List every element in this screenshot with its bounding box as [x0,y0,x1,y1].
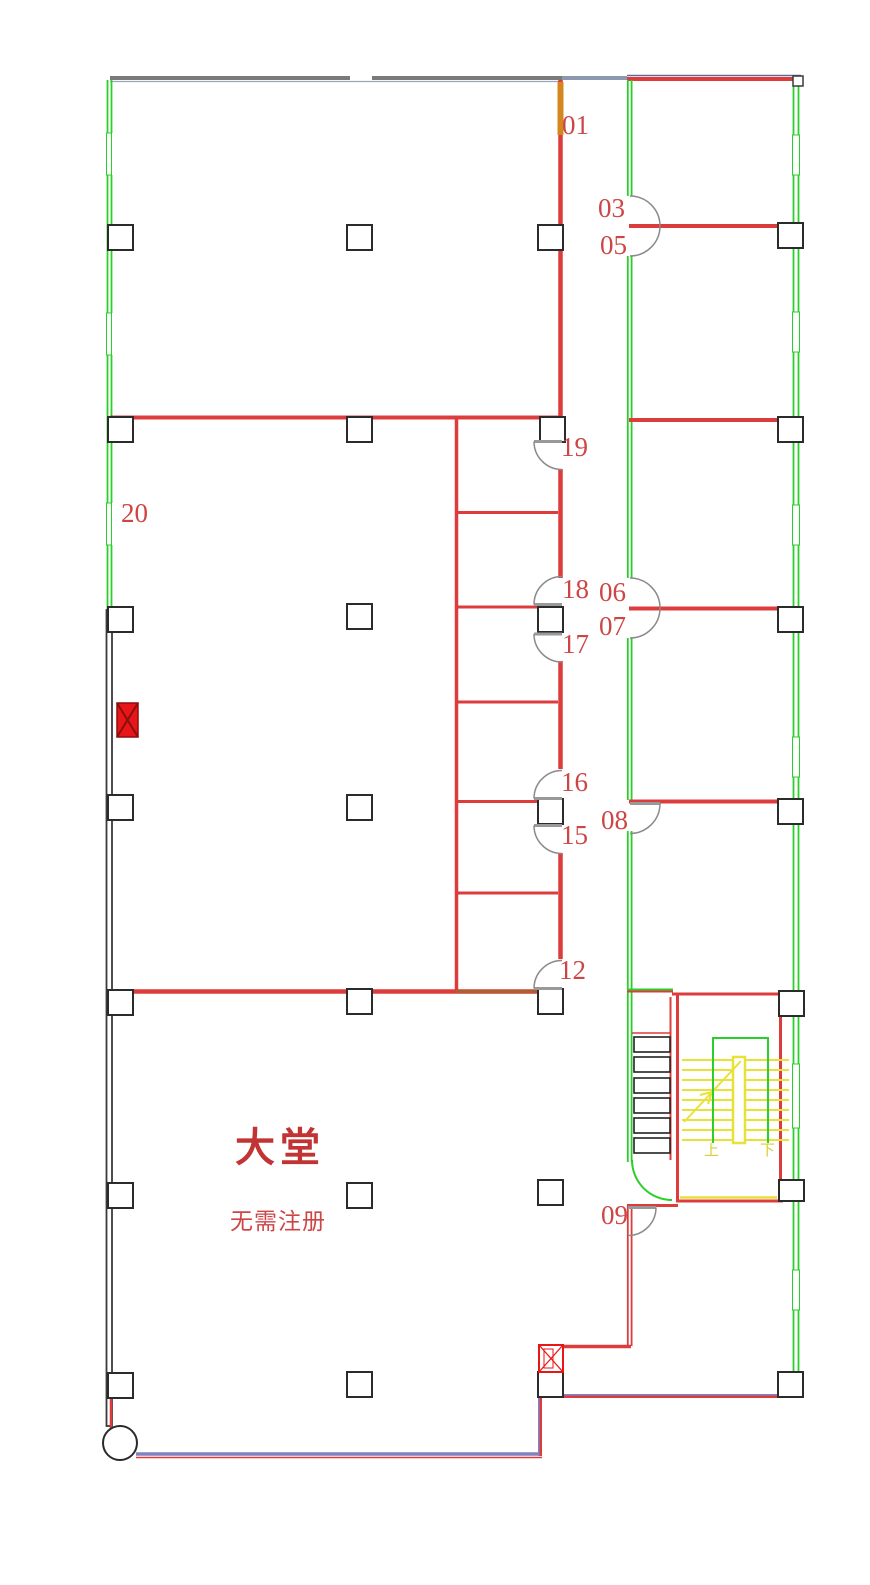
shaft-symbol [117,703,138,737]
room-label-08: 08 [601,807,628,834]
top-exterior-wall [110,76,801,82]
stair-up-label: 上 [704,1144,719,1159]
room-label-05: 05 [600,232,627,259]
lobby-title: 大堂 [235,1128,325,1168]
room-label-17: 17 [562,631,589,658]
floorplan-drawing [0,0,870,1585]
stair-flight-divider [733,1057,745,1143]
room-label-06: 06 [599,579,626,606]
right-exterior-wall [791,76,803,1372]
corner-column-circle [103,1426,137,1460]
room-label-19: 19 [561,434,588,461]
interior-partitions [110,226,793,1458]
floor-plan-canvas: 01 03 05 20 19 18 06 07 17 16 08 15 12 0… [0,0,870,1585]
stair-door-arc [632,1160,672,1200]
room-label-16: 16 [561,769,588,796]
room-label-12: 12 [559,957,586,984]
room-label-03: 03 [598,195,625,222]
fire-hydrant-symbol [539,1345,563,1372]
room-label-15: 15 [561,822,588,849]
room-label-09: 09 [601,1202,628,1229]
room-label-07: 07 [599,613,626,640]
room-label-18: 18 [562,576,589,603]
stair-down-label: 下 [760,1144,775,1159]
left-exterior-wall [105,80,114,1429]
plan-symbols [103,703,563,1460]
lobby-subtitle: 无需注册 [230,1210,326,1233]
cabinet-row [632,1033,670,1153]
room-label-01: 01 [562,112,589,139]
room-label-20: 20 [121,500,148,527]
window-gap [105,133,114,175]
window-gap [105,503,114,545]
staircase [680,1038,789,1198]
window-gap [105,313,114,355]
